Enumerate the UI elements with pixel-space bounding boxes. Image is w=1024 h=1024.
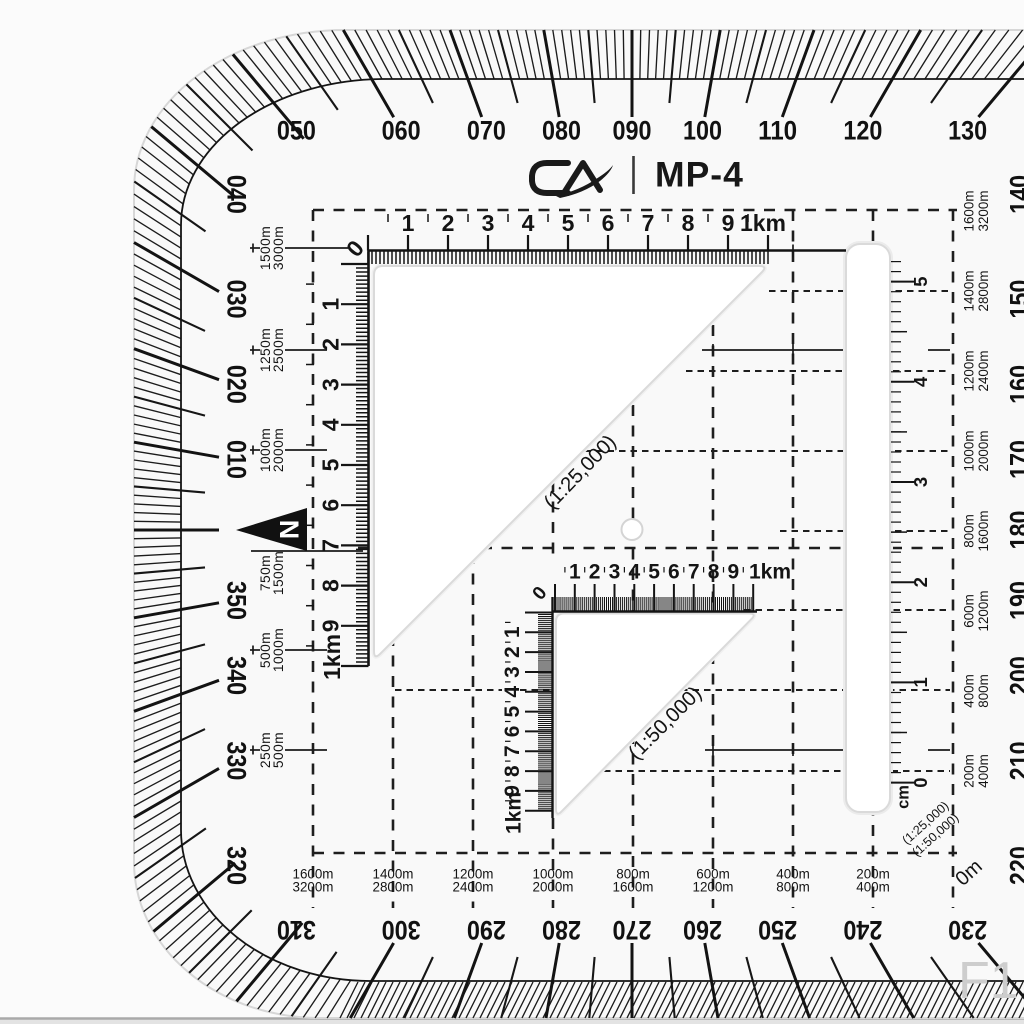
svg-text:4: 4 xyxy=(318,418,344,431)
svg-text:100: 100 xyxy=(683,116,722,146)
svg-text:080: 080 xyxy=(542,116,581,146)
svg-text:2: 2 xyxy=(318,338,344,351)
svg-text:400m: 400m xyxy=(856,880,890,895)
svg-text:2000m: 2000m xyxy=(976,431,991,472)
svg-text:5: 5 xyxy=(318,458,344,471)
svg-text:1200m: 1200m xyxy=(962,351,977,392)
svg-text:400m: 400m xyxy=(962,674,977,708)
svg-text:040: 040 xyxy=(222,175,252,214)
svg-text:4: 4 xyxy=(910,376,931,387)
svg-text:230: 230 xyxy=(948,915,987,945)
svg-text:060: 060 xyxy=(382,116,421,146)
svg-text:200: 200 xyxy=(1005,656,1024,695)
svg-text:800m: 800m xyxy=(962,514,977,548)
svg-text:1km: 1km xyxy=(749,561,791,584)
svg-text:2800m: 2800m xyxy=(976,271,991,312)
svg-text:1km: 1km xyxy=(319,634,345,680)
svg-text:030: 030 xyxy=(222,280,252,319)
svg-text:1400m: 1400m xyxy=(962,271,977,312)
svg-text:3: 3 xyxy=(501,666,524,678)
svg-text:5: 5 xyxy=(501,705,524,717)
svg-text:2: 2 xyxy=(501,646,524,658)
svg-text:1: 1 xyxy=(910,677,931,687)
svg-text:1200m: 1200m xyxy=(976,591,991,632)
svg-text:3: 3 xyxy=(318,378,344,391)
svg-text:310: 310 xyxy=(277,915,316,945)
svg-text:5: 5 xyxy=(562,210,575,236)
svg-text:MP-4: MP-4 xyxy=(655,155,744,195)
svg-text:8: 8 xyxy=(682,210,695,236)
svg-text:1200m: 1200m xyxy=(693,880,734,895)
svg-text:500m: 500m xyxy=(271,732,286,768)
svg-text:1600m: 1600m xyxy=(962,191,977,232)
svg-text:3200m: 3200m xyxy=(976,191,991,232)
svg-text:2500m: 2500m xyxy=(271,328,286,372)
svg-text:220: 220 xyxy=(1005,846,1024,885)
svg-text:010: 010 xyxy=(222,440,252,479)
svg-text:800m: 800m xyxy=(976,674,991,708)
svg-text:200m: 200m xyxy=(962,754,977,788)
svg-text:2: 2 xyxy=(910,577,931,587)
svg-text:1km: 1km xyxy=(740,210,786,236)
svg-text:190: 190 xyxy=(1005,581,1024,620)
svg-text:9: 9 xyxy=(722,210,735,236)
svg-text:1: 1 xyxy=(569,561,581,584)
svg-text:8: 8 xyxy=(708,561,720,584)
svg-text:1600m: 1600m xyxy=(976,511,991,552)
svg-text:4: 4 xyxy=(522,210,535,236)
svg-text:260: 260 xyxy=(683,915,722,945)
svg-text:1000m: 1000m xyxy=(962,431,977,472)
svg-text:2000m: 2000m xyxy=(271,428,286,472)
svg-text:240: 240 xyxy=(843,915,882,945)
svg-text:1600m: 1600m xyxy=(613,880,654,895)
svg-text:9: 9 xyxy=(728,561,740,584)
svg-text:1: 1 xyxy=(318,298,344,311)
svg-text:6: 6 xyxy=(602,210,615,236)
svg-text:110: 110 xyxy=(758,116,797,146)
svg-text:120: 120 xyxy=(843,116,882,146)
svg-text:2: 2 xyxy=(589,561,601,584)
svg-text:280: 280 xyxy=(542,915,581,945)
svg-text:7: 7 xyxy=(688,561,700,584)
svg-text:4: 4 xyxy=(501,686,524,698)
svg-text:1: 1 xyxy=(402,210,415,236)
svg-text:300: 300 xyxy=(382,915,421,945)
svg-text:320: 320 xyxy=(222,846,252,885)
svg-text:5: 5 xyxy=(648,561,660,584)
svg-text:0: 0 xyxy=(910,777,931,787)
svg-text:050: 050 xyxy=(277,116,316,146)
svg-text:6: 6 xyxy=(318,499,344,512)
svg-text:8: 8 xyxy=(318,579,344,592)
svg-text:2000m: 2000m xyxy=(533,880,574,895)
svg-text:330: 330 xyxy=(222,741,252,780)
svg-text:1km: 1km xyxy=(503,792,526,834)
svg-text:3: 3 xyxy=(482,210,495,236)
svg-text:270: 270 xyxy=(613,915,652,945)
svg-text:140: 140 xyxy=(1005,175,1024,214)
svg-text:cm: cm xyxy=(895,785,913,809)
svg-text:7: 7 xyxy=(642,210,655,236)
svg-text:3000m: 3000m xyxy=(271,226,286,270)
svg-text:340: 340 xyxy=(222,656,252,695)
svg-text:5: 5 xyxy=(910,276,931,286)
svg-text:3: 3 xyxy=(609,561,621,584)
svg-text:160: 160 xyxy=(1005,365,1024,404)
svg-text:350: 350 xyxy=(222,581,252,620)
svg-text:180: 180 xyxy=(1005,511,1024,550)
svg-text:210: 210 xyxy=(1005,741,1024,780)
svg-text:600m: 600m xyxy=(962,594,977,628)
svg-text:020: 020 xyxy=(222,365,252,404)
svg-text:800m: 800m xyxy=(776,880,810,895)
svg-text:4: 4 xyxy=(628,561,640,584)
svg-text:F1: F1 xyxy=(958,952,1019,1010)
svg-text:290: 290 xyxy=(467,915,506,945)
svg-text:1000m: 1000m xyxy=(271,628,286,672)
svg-text:7: 7 xyxy=(318,539,344,552)
svg-text:070: 070 xyxy=(467,116,506,146)
svg-text:090: 090 xyxy=(613,116,652,146)
svg-text:7: 7 xyxy=(501,745,524,757)
svg-text:6: 6 xyxy=(501,726,524,738)
svg-text:8: 8 xyxy=(501,765,524,777)
svg-text:2400m: 2400m xyxy=(976,351,991,392)
svg-text:1500m: 1500m xyxy=(271,551,286,595)
svg-text:1: 1 xyxy=(501,626,524,638)
svg-text:3200m: 3200m xyxy=(293,880,334,895)
svg-text:3: 3 xyxy=(910,477,931,487)
svg-text:170: 170 xyxy=(1005,440,1024,479)
svg-text:150: 150 xyxy=(1005,280,1024,319)
svg-text:2400m: 2400m xyxy=(453,880,494,895)
svg-text:130: 130 xyxy=(948,116,987,146)
svg-text:6: 6 xyxy=(668,561,680,584)
svg-text:2: 2 xyxy=(442,210,455,236)
svg-text:2800m: 2800m xyxy=(373,880,414,895)
svg-text:N: N xyxy=(274,520,304,540)
svg-text:400m: 400m xyxy=(976,754,991,788)
svg-text:250: 250 xyxy=(758,915,797,945)
svg-text:9: 9 xyxy=(318,619,344,632)
